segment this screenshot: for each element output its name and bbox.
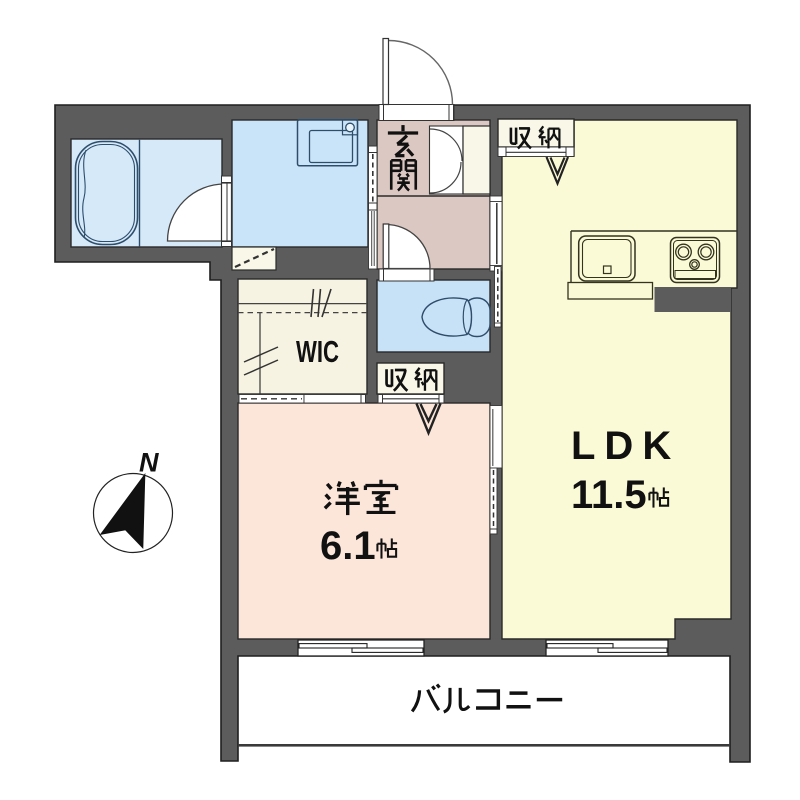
svg-text:6.1: 6.1 <box>320 524 376 568</box>
svg-text:LDK: LDK <box>571 424 680 468</box>
svg-text:11.5: 11.5 <box>571 473 647 517</box>
svg-text:N: N <box>139 448 159 478</box>
svg-text:WIC: WIC <box>296 334 339 369</box>
